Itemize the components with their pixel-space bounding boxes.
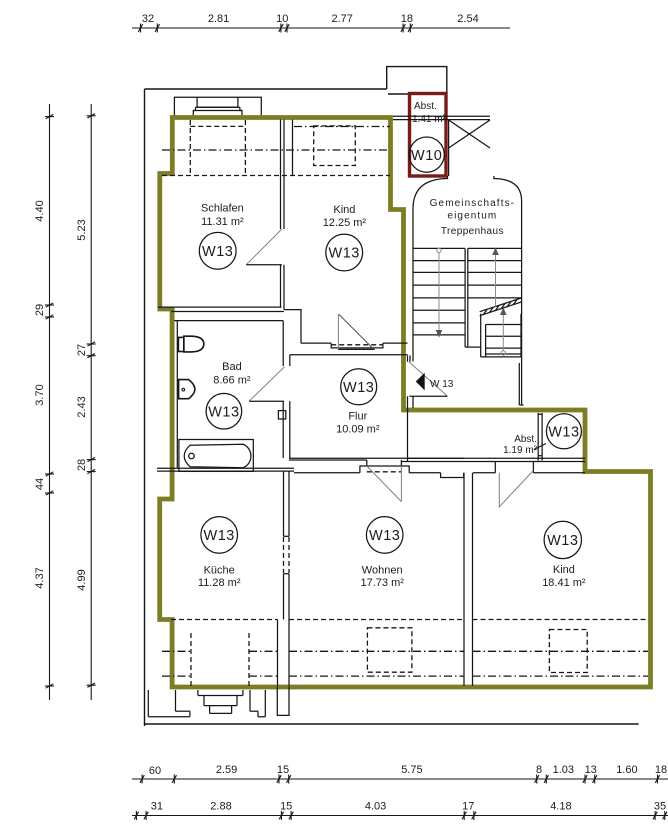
svg-text:10: 10 <box>276 13 288 25</box>
svg-text:W13: W13 <box>329 246 360 262</box>
svg-text:2.77: 2.77 <box>331 13 352 25</box>
svg-text:15: 15 <box>280 801 292 813</box>
svg-text:Bad: Bad <box>222 361 242 373</box>
svg-text:2.81: 2.81 <box>208 13 229 25</box>
svg-text:W13: W13 <box>548 425 579 441</box>
svg-text:8: 8 <box>536 764 542 776</box>
svg-text:1.60: 1.60 <box>616 764 637 776</box>
svg-text:1.03: 1.03 <box>553 764 574 776</box>
svg-text:Kind: Kind <box>333 204 355 216</box>
svg-text:31: 31 <box>151 801 163 813</box>
svg-text:3.70: 3.70 <box>34 384 46 405</box>
svg-text:18: 18 <box>655 764 667 776</box>
svg-text:Treppenhaus: Treppenhaus <box>441 226 504 237</box>
svg-text:44: 44 <box>34 478 46 490</box>
svg-text:Küche: Küche <box>204 565 235 577</box>
svg-text:27: 27 <box>76 344 88 356</box>
svg-text:Schlafen: Schlafen <box>201 203 244 215</box>
svg-text:4.03: 4.03 <box>365 801 386 813</box>
svg-text:eigentum: eigentum <box>447 211 497 222</box>
svg-text:Wohnen: Wohnen <box>362 565 403 577</box>
svg-text:2.43: 2.43 <box>76 396 88 417</box>
svg-text:32: 32 <box>142 13 154 25</box>
svg-text:W13: W13 <box>202 244 233 260</box>
svg-text:W13: W13 <box>369 528 400 544</box>
svg-text:Abst.: Abst. <box>514 434 537 445</box>
svg-text:11.28 m²: 11.28 m² <box>198 577 241 589</box>
svg-text:Flur: Flur <box>348 410 367 422</box>
svg-text:4.40: 4.40 <box>34 200 46 221</box>
svg-text:5.75: 5.75 <box>401 764 422 776</box>
svg-text:W10: W10 <box>411 148 442 164</box>
svg-text:2.88: 2.88 <box>210 801 231 813</box>
svg-text:29: 29 <box>34 304 46 316</box>
svg-text:13: 13 <box>585 764 597 776</box>
svg-text:W13: W13 <box>208 404 239 420</box>
svg-text:17: 17 <box>462 801 474 813</box>
svg-text:1.19 m²: 1.19 m² <box>503 445 538 456</box>
svg-text:18: 18 <box>401 13 413 25</box>
svg-text:15: 15 <box>277 764 289 776</box>
svg-text:4.18: 4.18 <box>550 801 571 813</box>
svg-text:18.41 m²: 18.41 m² <box>542 577 586 589</box>
svg-text:Kind: Kind <box>553 564 575 576</box>
svg-text:4.99: 4.99 <box>76 569 88 590</box>
svg-text:60: 60 <box>149 765 161 777</box>
svg-text:12.25 m²: 12.25 m² <box>323 217 367 229</box>
svg-text:8.66 m²: 8.66 m² <box>213 375 251 387</box>
svg-text:W 13: W 13 <box>430 379 454 390</box>
svg-text:2.59: 2.59 <box>216 764 237 776</box>
svg-text:5.23: 5.23 <box>76 219 88 240</box>
svg-text:4.37: 4.37 <box>34 567 46 588</box>
svg-text:35: 35 <box>654 801 666 813</box>
svg-text:Gemeinschafts-: Gemeinschafts- <box>430 198 515 209</box>
svg-text:W13: W13 <box>547 533 578 549</box>
svg-text:W13: W13 <box>343 380 374 396</box>
svg-text:2.54: 2.54 <box>457 13 478 25</box>
svg-text:17.73 m²: 17.73 m² <box>360 577 404 589</box>
svg-text:Abst.: Abst. <box>414 101 437 112</box>
svg-text:28: 28 <box>76 459 88 471</box>
svg-text:W13: W13 <box>204 528 235 544</box>
svg-text:11.31 m²: 11.31 m² <box>201 216 244 228</box>
svg-text:10.09 m²: 10.09 m² <box>336 423 380 435</box>
